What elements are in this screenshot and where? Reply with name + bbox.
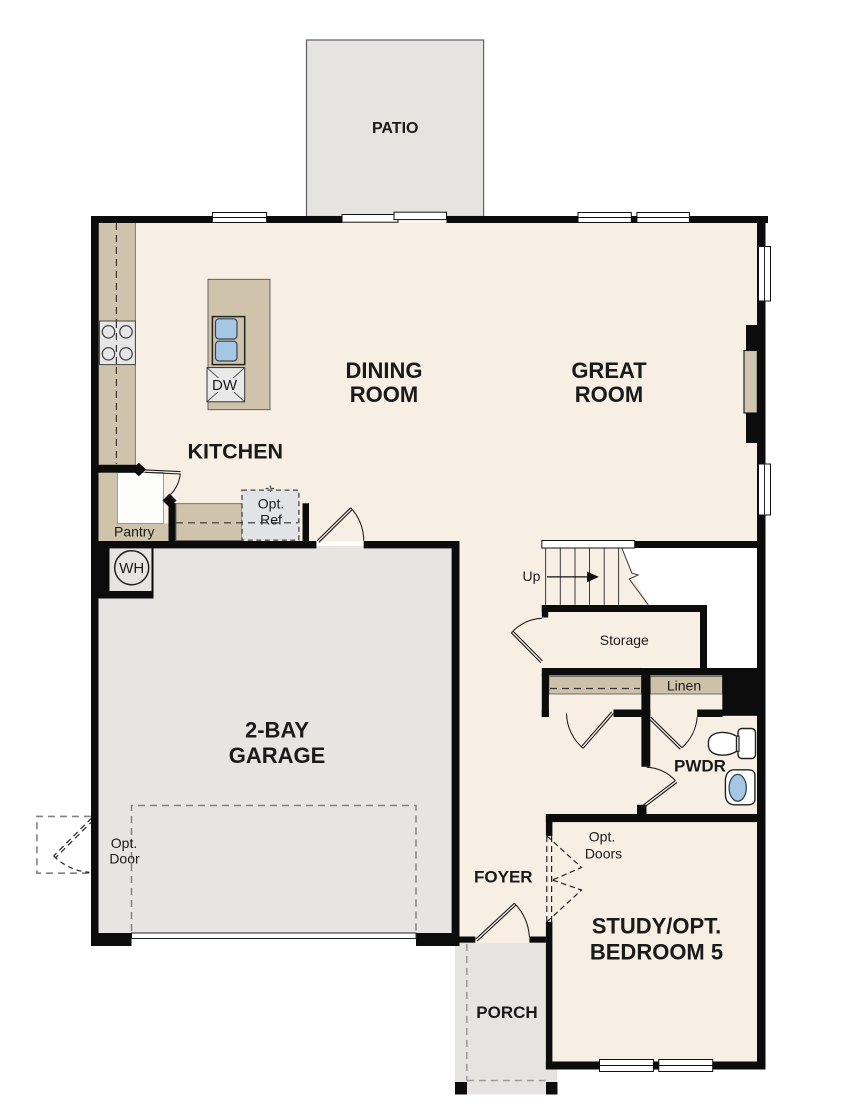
svg-text:STUDY/OPT.: STUDY/OPT. bbox=[592, 914, 722, 939]
svg-text:PWDR: PWDR bbox=[674, 756, 726, 775]
svg-text:ROOM: ROOM bbox=[350, 382, 418, 407]
svg-text:Up: Up bbox=[523, 568, 541, 584]
svg-text:DW: DW bbox=[212, 377, 238, 394]
svg-text:2-BAY: 2-BAY bbox=[245, 717, 309, 742]
svg-text:GARAGE: GARAGE bbox=[229, 743, 326, 768]
svg-text:ROOM: ROOM bbox=[575, 382, 643, 407]
svg-text:Opt.: Opt. bbox=[111, 835, 137, 851]
svg-text:DINING: DINING bbox=[346, 358, 423, 383]
svg-text:BEDROOM 5: BEDROOM 5 bbox=[590, 940, 723, 965]
svg-text:Opt.: Opt. bbox=[589, 828, 615, 844]
svg-text:Storage: Storage bbox=[600, 632, 649, 648]
svg-text:FOYER: FOYER bbox=[474, 868, 533, 887]
svg-text:Ref: Ref bbox=[260, 511, 282, 527]
svg-text:GREAT: GREAT bbox=[571, 358, 647, 383]
svg-text:KITCHEN: KITCHEN bbox=[188, 440, 284, 464]
svg-text:Pantry: Pantry bbox=[114, 524, 154, 540]
svg-text:PATIO: PATIO bbox=[372, 120, 419, 137]
svg-text:Linen: Linen bbox=[667, 677, 701, 693]
svg-text:Opt.: Opt. bbox=[258, 496, 284, 512]
svg-text:Door: Door bbox=[109, 851, 140, 867]
svg-text:Doors: Doors bbox=[585, 846, 622, 862]
svg-text:WH: WH bbox=[119, 560, 144, 577]
svg-text:PORCH: PORCH bbox=[476, 1003, 537, 1022]
